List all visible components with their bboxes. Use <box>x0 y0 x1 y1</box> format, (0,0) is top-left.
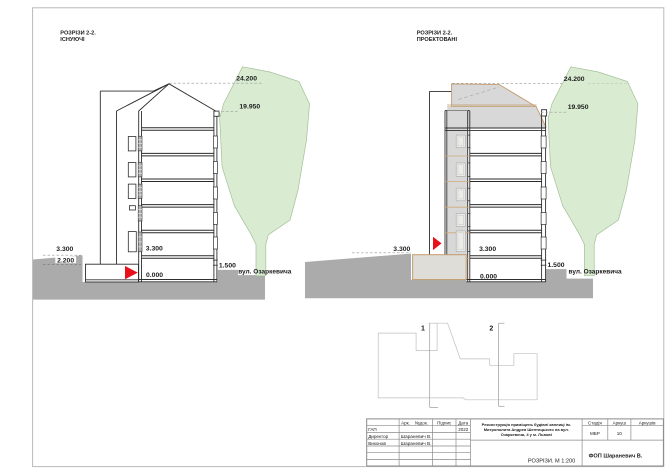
svg-text:Шараневич В.: Шараневич В. <box>401 434 432 439</box>
svg-text:3.300: 3.300 <box>393 246 410 253</box>
svg-text:Арк.: Арк. <box>401 420 410 425</box>
svg-text:10: 10 <box>617 431 623 436</box>
svg-text:Дата: Дата <box>458 420 468 425</box>
svg-text:Стадія: Стадія <box>588 420 602 425</box>
svg-text:2.200: 2.200 <box>57 258 74 265</box>
svg-text:Озаркевича, 4 у м. Львові: Озаркевича, 4 у м. Львові <box>501 432 552 437</box>
svg-text:1.500: 1.500 <box>548 262 565 269</box>
svg-text:3.300: 3.300 <box>479 246 496 253</box>
svg-text:19.950: 19.950 <box>239 103 260 110</box>
svg-text:Шараневич В.: Шараневич В. <box>401 441 432 446</box>
svg-text:вул. Озаркевича: вул. Озаркевича <box>238 268 292 275</box>
svg-text:Виконав: Виконав <box>368 441 386 446</box>
svg-text:Підпис: Підпис <box>437 420 452 425</box>
svg-text:РОЗРІЗИ 2-2.: РОЗРІЗИ 2-2. <box>60 31 96 37</box>
svg-text:ГАП: ГАП <box>368 427 377 432</box>
svg-text:РОЗРІЗИ. М 1:200: РОЗРІЗИ. М 1:200 <box>528 458 575 464</box>
svg-text:24.200: 24.200 <box>564 76 585 83</box>
svg-text:0.000: 0.000 <box>480 273 497 280</box>
svg-text:№док.: №док. <box>415 420 428 425</box>
svg-text:вул. Озаркевича: вул. Озаркевича <box>569 269 623 276</box>
svg-text:0.000: 0.000 <box>146 272 163 279</box>
svg-text:1: 1 <box>421 326 425 333</box>
svg-text:ІСНУЮЧІ: ІСНУЮЧІ <box>60 37 85 43</box>
svg-text:РОЗРІЗИ 2-2.: РОЗРІЗИ 2-2. <box>417 31 453 37</box>
svg-text:ПРОЕКТОВАНІ: ПРОЕКТОВАНІ <box>417 37 458 43</box>
svg-text:3.300: 3.300 <box>56 246 73 253</box>
svg-text:3.300: 3.300 <box>146 246 163 253</box>
svg-text:Директор: Директор <box>368 434 388 439</box>
svg-text:ФОП Шараневич В.: ФОП Шараневич В. <box>589 453 643 459</box>
svg-text:24.200: 24.200 <box>236 76 257 83</box>
svg-text:МБР: МБР <box>590 431 600 436</box>
svg-text:2022: 2022 <box>458 427 469 432</box>
svg-text:19.950: 19.950 <box>568 104 589 111</box>
svg-text:Аркуш: Аркуш <box>613 420 627 425</box>
svg-text:Аркушів: Аркушів <box>639 420 656 425</box>
svg-text:1.500: 1.500 <box>219 263 236 270</box>
svg-text:2: 2 <box>489 326 493 333</box>
